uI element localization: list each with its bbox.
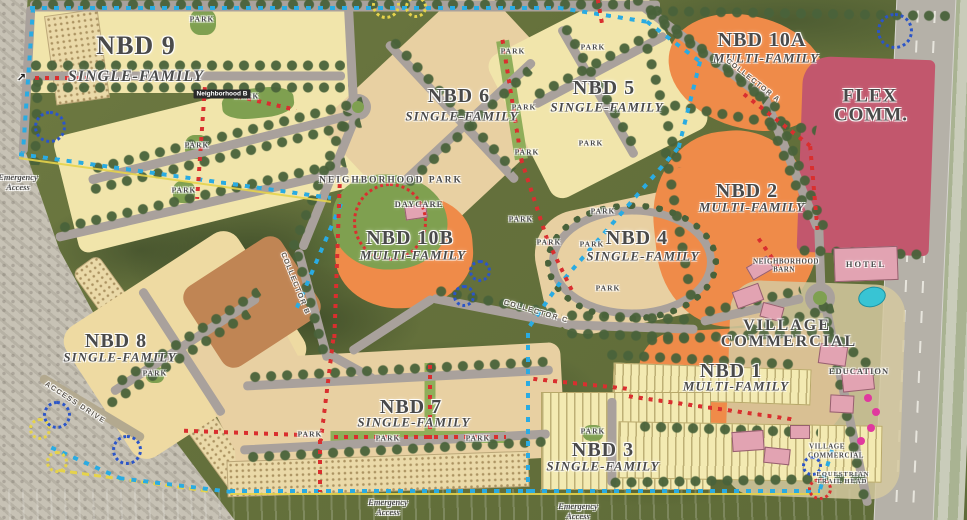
master-plan-map: NBD 9 SINGLE-FAMILY NBD 6 SINGLE-FAMILY … (0, 0, 967, 520)
trail-yellow-node (405, 0, 427, 18)
park-label: PARK (581, 427, 606, 435)
trailhead-node (877, 13, 913, 49)
emergency-access-label: Emergency Access (357, 498, 419, 518)
neighborhood-b-badge: Neighborhood B (194, 90, 251, 99)
education-building (830, 394, 855, 413)
nbd10b-subtitle: MULTI-FAMILY (360, 249, 466, 262)
trail-yellow (230, 493, 820, 495)
park-label: PARK (466, 434, 491, 442)
north-east-arrow-icon: ↗ (17, 73, 27, 84)
park-label: PARK (579, 139, 604, 147)
nbd7-subtitle: SINGLE-FAMILY (357, 416, 470, 429)
park-label: PARK (190, 15, 215, 23)
marker-dot (872, 408, 880, 416)
trailhead-node (469, 260, 491, 282)
village-commercial-label-line1: VILLAGE (743, 318, 831, 334)
nbd5-title: NBD 5 (573, 78, 635, 98)
education-label: EDUCATION (829, 367, 889, 376)
park-label: PARK (172, 186, 197, 194)
park-label: PARK (537, 238, 562, 246)
nbd2-title: NBD 2 (716, 181, 778, 201)
park-label: PARK (512, 103, 537, 111)
marker-dot (867, 424, 875, 432)
emergency-access-label: Emergency Access (547, 502, 609, 520)
nbd10a-title: NBD 10A (718, 30, 807, 50)
trail-red (318, 440, 322, 492)
nbd3-title: NBD 3 (572, 440, 634, 460)
nbd10b-title: NBD 10B (366, 228, 454, 248)
nbd6-title: NBD 6 (428, 86, 490, 106)
park-label: PARK (376, 434, 401, 442)
roundabout-center (813, 291, 827, 305)
flex-comm-label-line2: COMM. (834, 106, 908, 125)
trail-blue (526, 333, 530, 493)
nbd8-subtitle: SINGLE-FAMILY (63, 351, 176, 364)
park-label: PARK (143, 369, 168, 377)
trail-yellow-node (46, 451, 68, 473)
village-commercial-building (763, 447, 791, 466)
emergency-access-label: Emergency Access (0, 173, 41, 193)
park-label: PARK (591, 207, 616, 215)
nbd9-subtitle: SINGLE-FAMILY (68, 69, 204, 85)
nbd1-subtitle: MULTI-FAMILY (683, 380, 789, 393)
neighborhood-barn-label-line2: BARN (773, 267, 795, 274)
park-label: PARK (580, 240, 605, 248)
trail-blue (30, 6, 560, 10)
nbd5-subtitle: SINGLE-FAMILY (550, 101, 663, 114)
roundabout-center (352, 101, 364, 113)
nbd4-title: NBD 4 (606, 228, 668, 248)
park-label: PARK (298, 430, 323, 438)
park-label: PARK (515, 148, 540, 156)
marker-dot (864, 394, 872, 402)
nbd8-title: NBD 8 (85, 331, 147, 351)
park-label: PARK (509, 215, 534, 223)
nbd2-subtitle: MULTI-FAMILY (699, 201, 805, 214)
trailhead-node (453, 285, 475, 307)
village-commercial-small-label-line2: COMMERCIAL (808, 453, 864, 460)
trailhead-node (43, 401, 71, 429)
trailhead-node (34, 111, 66, 143)
equestrian-trail-head-label-line2: TRAIL HEAD (817, 479, 868, 486)
trailhead-node (112, 435, 142, 465)
neighborhood-park-label: NEIGHBORHOOD PARK (319, 176, 463, 186)
hotel-label: HOTEL (846, 260, 886, 269)
park-label: PARK (581, 43, 606, 51)
nbd4-subtitle: SINGLE-FAMILY (586, 250, 699, 263)
flex-comm-label-line1: FLEX (843, 87, 898, 106)
nbd9-title: NBD 9 (96, 33, 175, 59)
daycare-label: DAYCARE (395, 200, 444, 209)
nbd6-subtitle: SINGLE-FAMILY (405, 110, 518, 123)
nbd3-subtitle: SINGLE-FAMILY (546, 460, 659, 473)
park-label: PARK (185, 141, 210, 149)
village-commercial-small-label-line1: VILLAGE (809, 444, 845, 451)
village-commercial-label-line2: COMMERCIAL (721, 334, 857, 350)
marker-dot (857, 437, 865, 445)
village-commercial-building (790, 425, 810, 439)
park-label: PARK (501, 47, 526, 55)
neighborhood-barn-label-line1: NEIGHBORHOOD (753, 259, 819, 266)
park-label: PARK (596, 284, 621, 292)
village-commercial-building (731, 430, 764, 452)
trail-yellow-node (372, 0, 400, 19)
